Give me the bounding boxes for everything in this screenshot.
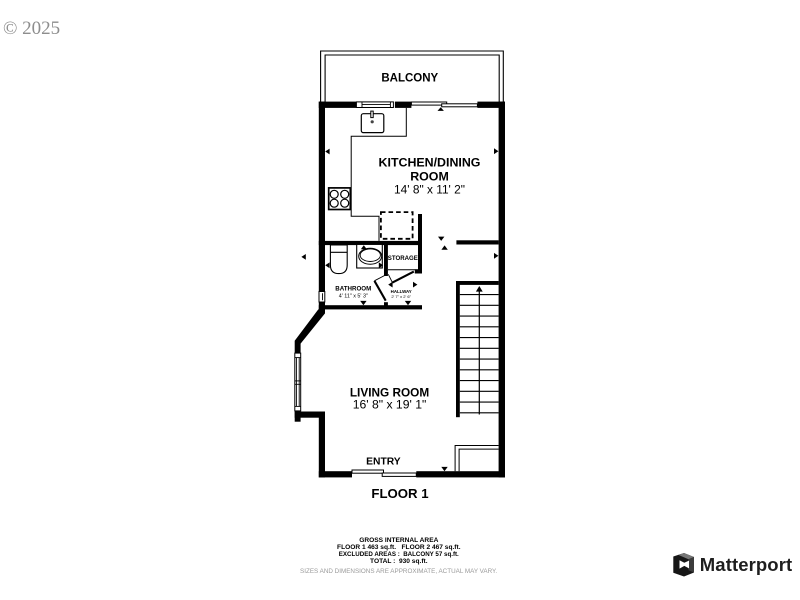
- svg-text:Matterport: Matterport: [700, 554, 792, 575]
- svg-text:14' 8" x 11' 2": 14' 8" x 11' 2": [394, 183, 465, 197]
- svg-text:2' 7" x 2' 6": 2' 7" x 2' 6": [391, 294, 411, 299]
- svg-text:FLOOR 1: FLOOR 1: [371, 486, 428, 501]
- svg-text:16' 8" x 19' 1": 16' 8" x 19' 1": [353, 397, 427, 411]
- svg-text:KITCHEN/DINING: KITCHEN/DINING: [379, 156, 481, 170]
- svg-text:TOTAL : 930 sq.ft.: TOTAL : 930 sq.ft.: [370, 558, 428, 565]
- svg-text:ENTRY: ENTRY: [366, 456, 401, 467]
- svg-text:ROOM: ROOM: [410, 170, 449, 184]
- svg-text:4' 11" x 5' 3": 4' 11" x 5' 3": [339, 293, 368, 299]
- svg-text:EXCLUDED AREAS : BALCONY 57 s: EXCLUDED AREAS : BALCONY 57 sq.ft.: [339, 551, 459, 558]
- svg-text:BALCONY: BALCONY: [381, 73, 438, 85]
- svg-text:SIZES AND DIMENSIONS ARE APPRO: SIZES AND DIMENSIONS ARE APPROXIMATE, AC…: [300, 568, 497, 575]
- svg-text:BATHROOM: BATHROOM: [335, 286, 371, 293]
- svg-text:FLOOR 1 463 sq.ft. FLOOR 2 4: FLOOR 1 463 sq.ft. FLOOR 2 467 sq.ft.: [337, 544, 461, 551]
- svg-text:STORAGE: STORAGE: [388, 255, 418, 262]
- svg-text:© 2025: © 2025: [3, 18, 60, 39]
